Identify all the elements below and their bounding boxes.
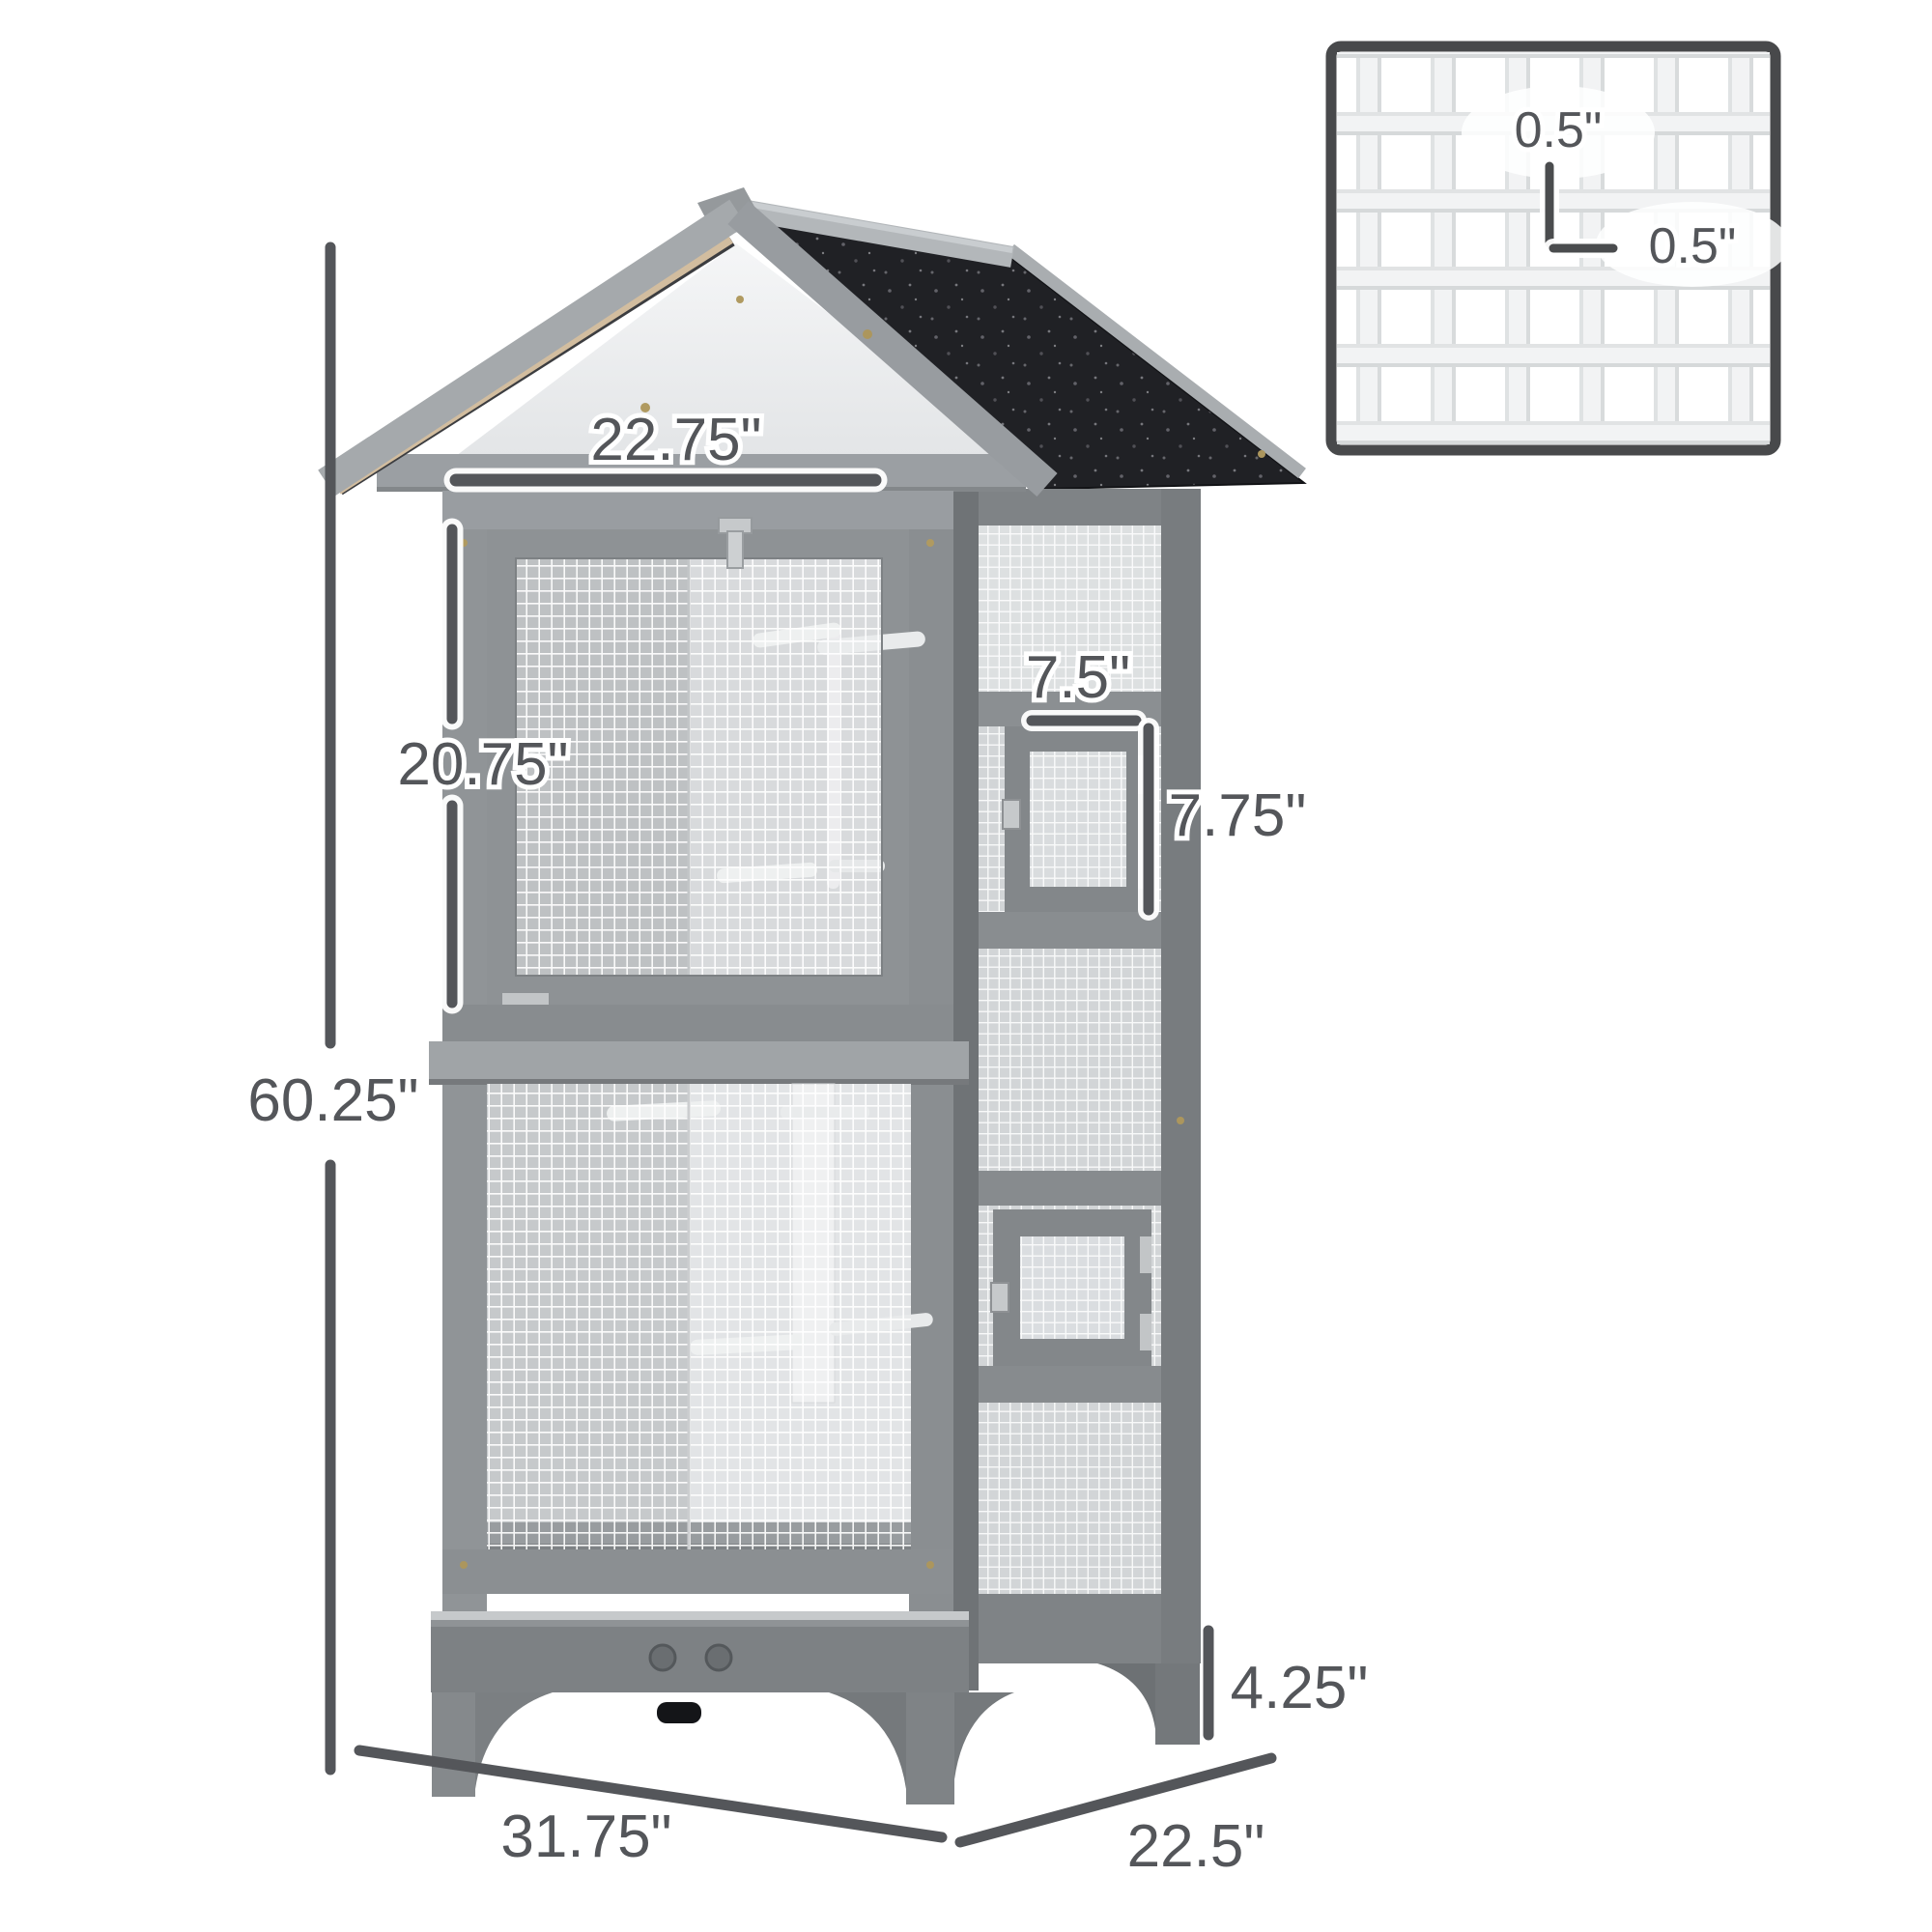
screw-icon bbox=[863, 329, 872, 339]
screw-icon bbox=[1177, 1117, 1184, 1124]
tray-knob-icon bbox=[650, 1645, 675, 1670]
screw-icon bbox=[460, 1561, 468, 1569]
screw-icon bbox=[1258, 450, 1265, 458]
dim-label-upper-height: 20.75" bbox=[397, 731, 568, 798]
tray-knob-icon bbox=[706, 1645, 731, 1670]
lower-front-mesh-wire bbox=[487, 1084, 911, 1549]
mid-rail-lower bbox=[429, 1041, 969, 1084]
upper-front-mesh-wire bbox=[516, 558, 882, 976]
door-hinge-icon bbox=[1140, 1314, 1151, 1350]
pullout-tray bbox=[431, 1620, 969, 1692]
front-right-post bbox=[909, 491, 953, 1689]
inset-label-mesh-width: 0.5" bbox=[1649, 218, 1737, 274]
screw-icon bbox=[926, 1561, 934, 1569]
diagram-canvas: 22.75" 20.75" 60.25" 7.5" 7.75" 4.25" 31… bbox=[0, 0, 1932, 1932]
dim-label-front-width: 22.75" bbox=[590, 407, 761, 473]
dim-label-total-height: 60.25" bbox=[247, 1067, 418, 1134]
mid-rail-upper bbox=[442, 1005, 953, 1041]
door-latch-icon bbox=[991, 1283, 1009, 1312]
front-right-leg bbox=[906, 1692, 954, 1804]
bottom-rail bbox=[442, 1549, 953, 1594]
side-rear-post bbox=[1161, 489, 1201, 1663]
mesh-detail-inset: 0.5" 0.5" bbox=[1331, 46, 1789, 450]
dim-label-base-width: 31.75" bbox=[500, 1804, 671, 1870]
tray-pull-handle bbox=[657, 1702, 701, 1723]
screw-icon bbox=[736, 296, 744, 303]
tray-slide-rail bbox=[431, 1611, 969, 1620]
front-left-leg bbox=[432, 1692, 475, 1797]
side-front-corner-edge bbox=[953, 489, 979, 1690]
lower-front-section bbox=[487, 1084, 933, 1550]
lower-side-door-mesh-wire bbox=[1020, 1236, 1124, 1339]
aviary-dimension-diagram: 22.75" 20.75" 60.25" 7.5" 7.75" 4.25" 31… bbox=[0, 0, 1932, 1932]
upper-side-door bbox=[1003, 726, 1151, 912]
upper-side-door-mesh-wire bbox=[1030, 752, 1126, 887]
inset-label-mesh-height: 0.5" bbox=[1515, 102, 1603, 158]
front-top-beam bbox=[442, 491, 953, 529]
dim-label-door-height: 7.75" bbox=[1169, 782, 1307, 849]
pullout-tray-top-edge bbox=[431, 1620, 969, 1627]
front-door-latch-icon bbox=[727, 531, 743, 568]
dim-label-base-depth: 22.5" bbox=[1127, 1813, 1265, 1880]
dim-label-leg-height: 4.25" bbox=[1231, 1655, 1369, 1721]
door-hinge-icon bbox=[1140, 1236, 1151, 1273]
rear-right-leg bbox=[1155, 1663, 1200, 1745]
door-latch-icon bbox=[1003, 800, 1020, 829]
dim-label-door-width: 7.5" bbox=[1026, 644, 1130, 711]
screw-icon bbox=[926, 539, 934, 547]
lower-side-door bbox=[991, 1209, 1151, 1366]
